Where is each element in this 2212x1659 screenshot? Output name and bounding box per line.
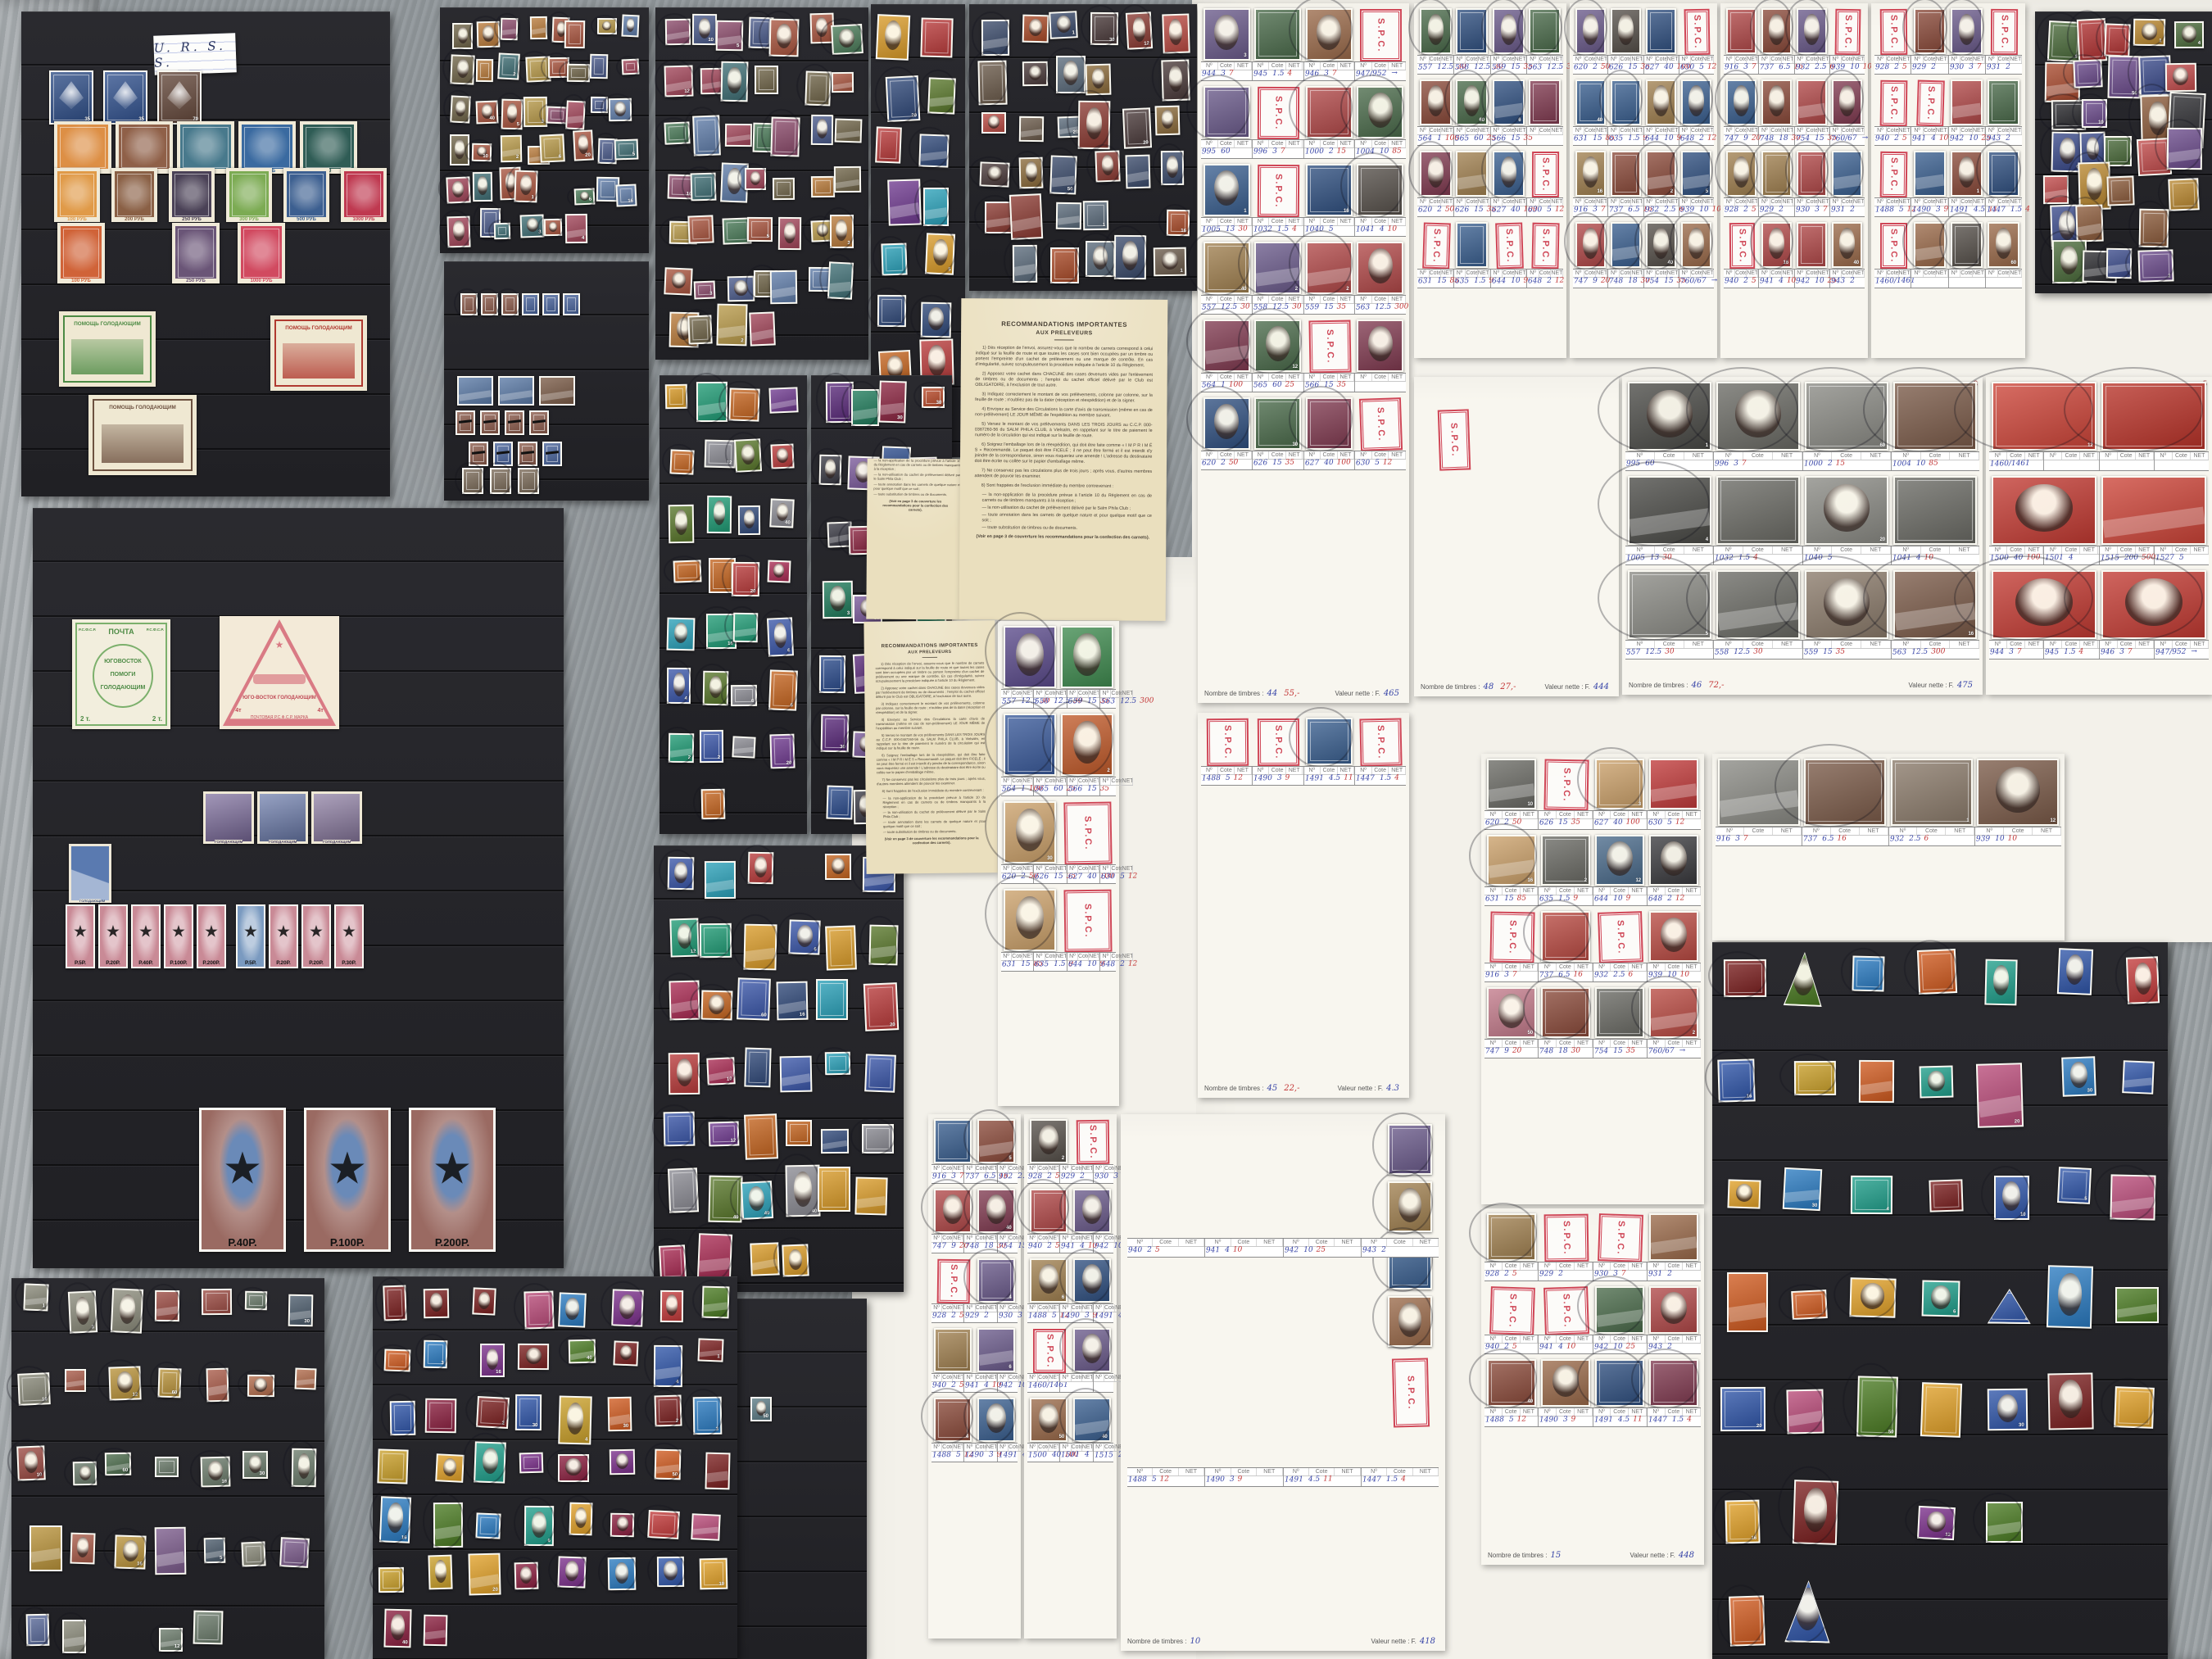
stamp-design [827,383,852,421]
hw-net: 300 [1931,647,1945,655]
price-grid-cell: NºCoteNET [1949,270,1986,288]
collection-label: U. R. S. S. [153,33,237,75]
stamp-design: 16 [1168,211,1189,234]
imperf-stamp: 100 РУБ [57,223,105,283]
spc-handstamp: S.P.C. [1834,9,1861,55]
grid-header-col_no: Nº [1253,374,1270,381]
price-grid-row: NºCoteNET91637NºCoteNET7376.516NºCoteNET… [1724,55,1865,75]
grid-header-col_no: Nº [964,1374,975,1381]
hw-cote: 3 [1277,774,1282,782]
grid-header-col_no: Nº [2100,641,2118,648]
frame-line [753,21,769,44]
handwritten-entry: 941410 [1539,1343,1576,1352]
grid-header-col_net: NET [1973,56,1985,63]
portrait-vignette [741,443,755,465]
hw-cote: 1.5 [1277,225,1290,233]
price-grid-cell: NºCoteNET1515200500 [2100,546,2155,564]
grid-header-col_no: Nº [1986,127,1998,134]
booklet-footer: Nombre de timbres :4455,-Valeur nette : … [1204,689,1403,698]
portrait-vignette [784,221,796,243]
portrait-vignette [2058,1380,2083,1418]
frame-line [1650,12,1672,50]
portrait-vignette [1029,66,1042,81]
hw-net: 12 [1707,134,1717,143]
stamp-design [823,1131,847,1152]
footer-value-amount: 465 [1384,689,1399,698]
hw-cote: 2 [951,1381,956,1389]
stamp: 70 [157,70,202,125]
frame-line [1008,718,1052,772]
hw-net: 30 [1292,302,1302,310]
frame-line [1895,763,1969,822]
stamp-design [1648,81,1675,124]
grid-header-col_no: Nº [1454,270,1466,277]
frame-line [121,127,167,168]
frame-line [2108,140,2128,162]
hw-cote: 3 [1085,1312,1090,1320]
stamp: 2 [501,135,523,162]
stamp-design [781,1058,810,1091]
hw-cote: 4.5 [1308,1475,1320,1484]
hw-cote: 3 [1815,206,1820,214]
grid-header-col_net: NET [1631,56,1643,63]
grid-header-col_no: Nº [1679,198,1691,206]
price-grid-cell: NºCoteNET644109 [1593,887,1648,905]
grid-header-col_cote: Cote [1503,887,1521,895]
hw-net: 7 [1229,70,1234,78]
grid-header-col_net: NET [2191,546,2209,554]
stamp: 30 [607,1397,632,1432]
portrait-vignette [1092,68,1105,88]
hw-cote: 15 [1087,785,1097,793]
stamp-design [156,1458,177,1475]
portrait-vignette [728,67,741,94]
handwritten-entry: 94437 [1202,70,1234,79]
stamp-design [1163,16,1188,52]
stamp [1919,1065,1953,1098]
pictorial-band [470,1574,501,1589]
stamp-design [1895,478,1975,543]
frame-line [1801,155,1823,193]
hw-cote: 5 [1509,1416,1514,1424]
overprint-design: ★Р.5Р. [238,906,264,967]
grid-header-col_net: NET [1022,865,1033,873]
stamp-design: 16 [116,1536,144,1567]
stamp-design [565,22,582,47]
stamp [1832,151,1862,197]
pictorial-band [771,287,795,298]
price-grid-row: NºCoteNET620250NºCoteNET6261535NºCoteNET… [1417,197,1563,217]
stamp-design [769,562,789,582]
handwritten-entry: 644109 [1068,960,1105,969]
grid-header-col_no: Nº [1100,865,1111,873]
stamp-design [1005,891,1054,950]
stamp [1077,101,1110,150]
pictorial-band [1683,174,1710,188]
stamp-design: 16 [777,982,806,1018]
stamp-design [1793,1291,1826,1318]
stamp-design [1798,10,1825,52]
grid-header-col_no: Nº [1060,1165,1071,1172]
exclusion-item: — la non-utilisation du cachet de prélèv… [873,473,960,482]
stamp [669,505,695,543]
hw-net: 11 [1344,773,1353,782]
footer-count-label: Nombre de timbres : [1127,1638,1186,1645]
frame-line [2077,63,2098,84]
price-grid-cell: NºCoteNET55712.530 [1417,56,1454,74]
portrait-vignette [458,27,468,43]
golodayushchim-design [314,794,360,841]
price-grid-row: NºCoteNET94025NºCoteNET941410NºCoteNET94… [931,1373,1018,1393]
stamp-value: 10 [2020,1213,2026,1217]
grid-header-col_net: NET [2010,56,2022,63]
stamp-design: 1 [1085,202,1107,229]
grid-header-col_no: Nº [1253,62,1270,70]
grid-header-col_cote: Cote [1842,198,1853,206]
frame-line [347,174,381,216]
stamp: 50 [1487,987,1536,1038]
portrait-vignette [487,1348,499,1369]
stamp: 16 [1575,151,1606,197]
stamp-design [2103,478,2205,543]
stamp [473,172,493,202]
grid-header-col_net: NET [1056,953,1067,960]
star-overprint-stamp: ★Р.20Р. [301,904,331,968]
hw-number: 558 [1715,648,1729,656]
handwritten-entry: 6311585 [1418,276,1459,285]
footer-value-label: Valeur nette : F. [1630,1552,1675,1559]
pictorial-band [156,1551,184,1566]
price-grid-row: NºCoteNET5641100NºCoteNET5656025NºCoteNE… [1201,373,1406,392]
booklet-footer: Nombre de timbres :15Valeur nette : F.44… [1488,1551,1698,1560]
hw-number: 932 [1644,206,1658,214]
grid-header-col_cote: Cote [1611,1335,1629,1343]
booklet-stamp-row: S.P.C.4 [931,1257,1018,1303]
stamp-design [1612,224,1639,266]
hw-cote: 60 [1645,460,1655,468]
stamp [934,1119,972,1163]
grid-header-col_cote: Cote [1045,865,1056,873]
grid-header-col_cote: Cote [942,1444,953,1451]
grid-header-col_cote: Cote [1960,127,1973,134]
grid-header-col_no: Nº [2044,452,2062,460]
stockbook-page-page-fifties: 1051210533102 [655,7,868,360]
grid-header-col_net: NET [1683,1262,1701,1270]
grid-header-col_cote: Cote [1045,953,1056,960]
grid-header-col_cote: Cote [1503,1262,1521,1270]
stamp [827,261,854,300]
hw-number: 760/67 [1831,134,1857,143]
stamp [875,127,902,164]
handwritten-entry: 15014 [2045,554,2077,563]
stamp [1646,8,1676,54]
recommendation-paragraph: 5) Versez le montant de vos prélèvements… [876,732,985,750]
price-grid-row: NºCoteNET92825NºCoteNET9292NºCoteNET9303… [1874,55,2022,75]
stamp-design [1728,81,1755,124]
hw-net: 12 [1675,895,1685,903]
hw-number: 563 [1356,303,1370,311]
spc-holder: S.P.C. [1541,1212,1590,1261]
hw-number: 630 [1648,818,1662,827]
stamp: 30 [878,381,907,424]
grid-header-col_no: Nº [1304,140,1321,147]
stockbook-page-page-bright: 31640412304302350166201040 [373,1276,737,1659]
hw-cote: 2 [1593,63,1598,71]
stamp-design: 5 [1683,152,1710,195]
stamp-value: 2 [675,1418,678,1423]
stamp-design [1086,65,1109,93]
footer-right: Valeur nette : F.448 [1630,1551,1698,1560]
stamp-value: 3 [538,229,542,234]
stamp-design: 60 [1457,81,1486,124]
stamp-design: 2 [1648,152,1675,195]
stamp-value: 5 [737,44,739,49]
overprint-value: Р.5Р. [238,960,264,966]
hw-number: 563 [1101,697,1115,705]
stamp: 35 [49,70,93,125]
hw-number: 1490 [1539,1416,1558,1424]
green-value: 2 т. [152,715,162,723]
stamp [2105,24,2131,57]
exclusion-item: — la non-application de la procédure pré… [874,459,961,472]
pictorial-band [2111,1197,2154,1213]
stamp [378,1449,409,1484]
stamp-value: 5 [517,123,519,128]
grid-header-col_cote: Cote [1072,1304,1082,1312]
footer-count-value: 44 [1267,689,1277,698]
stamp-value: 5 [1706,189,1708,194]
stamp [610,1513,634,1537]
frame-line [485,297,494,311]
handwritten-entry: 1488512 [1202,773,1243,782]
stamp [666,618,695,650]
star-overprint-stamp: ★Р.30Р. [334,904,364,968]
price-grid-cell: NºCoteNET92825 [1724,198,1759,216]
handwritten-entry: 5591535 [1491,62,1532,71]
stamp: 2 [1646,151,1676,197]
hw-cote: 60 [1272,381,1282,389]
frame-line [600,181,614,198]
hw-number: 748 [1609,277,1623,285]
price-grid-cell: NºCoteNET99637 [1253,140,1304,158]
hw-cote: 2 [985,1312,990,1320]
pictorial-band [1205,345,1249,364]
spc-text: S.P.C. [1274,96,1284,130]
grid-header-col_cote: Cote [1430,198,1442,206]
grid-header-col_cote: Cote [1104,1374,1115,1381]
hw-net: 30 [1665,647,1675,655]
hw-number: 1447 [1648,1416,1667,1424]
stamp [821,1129,849,1154]
pictorial-band [706,879,734,892]
grid-header-col_no: Nº [1795,127,1806,134]
stamp-design [66,1371,84,1390]
hw-number: 557 [1002,697,1016,705]
stamp [1050,247,1079,283]
stamp [292,1448,317,1487]
hw-cote: 3 [1504,971,1509,979]
stamp-design [772,446,792,467]
overprint-star: ★ [276,922,291,942]
stamp-value: 5 [1706,632,1708,637]
stamp-design [249,1376,273,1395]
hw-cote: 1.5 [1672,1416,1684,1424]
price-grid-cell: NºCoteNET1041410 [1892,546,1979,564]
stamp [2073,59,2103,88]
stamp-design: 1 [699,1340,722,1361]
stamp-value: 12 [175,1643,180,1648]
stamp-value: 40 [1853,261,1859,265]
stamp-value: 4 [966,1435,968,1439]
stamp-value: 4 [684,696,687,701]
handwritten-entry: 9292 [965,1312,992,1321]
stamp: 5 [716,20,743,52]
stamp: 60 [1805,382,1888,451]
stamp-design [1013,247,1035,281]
price-grid-cell: NºCoteNET55812.530 [1714,641,1802,659]
price-grid-cell: NºCoteNET9292 [964,1304,997,1322]
portrait-vignette [1769,85,1784,116]
stamp [1306,718,1353,765]
grid-header-col_no: Nº [1100,953,1111,960]
grid-header-col_no: Nº [1417,127,1430,134]
footer-right: Valeur nette : F.465 [1335,689,1403,698]
stamp-design [496,224,510,238]
pictorial-band [829,534,851,544]
hw-cote: 2 [1558,1270,1563,1278]
hw-number: 947/952 [1356,70,1387,79]
collection-label-text: U. R. S. S. [153,38,236,70]
price-grid-cell: NºCoteNET99560 [1625,452,1714,470]
price-grid-cell: NºCoteNET91637 [1724,56,1759,74]
price-grid-cell: NºCoteNET62740100 [1304,451,1356,469]
portrait-vignette [674,861,687,882]
frame-line [1728,963,1763,993]
spc-handstamp: S.P.C. [1879,80,1907,126]
handwritten-entry: 1041410 [1892,553,1933,562]
hw-cote: 18 [985,1242,995,1250]
stockbook-page-page-portraits: 1266016201012404040 [654,845,904,1292]
price-grid-cell: NºCoteNET620250 [1484,811,1539,829]
hw-net: 5 [1155,1246,1160,1254]
portrait-vignette [1101,156,1113,176]
grid-header-col_no: Nº [1679,270,1691,277]
stamp [727,276,755,302]
grid-header-col_no: Nº [2044,546,2062,554]
stamp [154,1526,186,1575]
stamp-design [1075,1260,1109,1301]
stamp-design [979,62,1005,103]
price-grid-cell: NºCoteNET [1355,374,1406,392]
stamp-design [1057,204,1079,228]
hw-number: 1041 [1356,225,1375,233]
stamp [1681,79,1711,125]
hw-cote: → [1392,70,1398,78]
handwritten-entry: 630512 [1680,63,1717,72]
stamp [818,1167,850,1212]
portrait-vignette [298,1453,310,1479]
stamp-design: 10 [700,1560,726,1589]
stamp-design [689,216,712,242]
stamp-design: 2 [499,55,518,79]
stamp-design [454,25,471,48]
green-oval: ЮГОВОСТОКПОМОГИГОЛОДАЮЩИМ [93,644,152,707]
stamp-design [883,244,907,274]
stamp-design [739,507,758,533]
stamp-value: 30 [2087,1089,2092,1094]
handwritten-entry: 630512 [1101,873,1138,882]
stamp: 10 [692,14,717,45]
handwritten-entry: 6351.59 [1609,134,1648,143]
footer-count-value: 46 [1691,681,1702,690]
booklet-footer: Nombre de timbres :4672,-Valeur nette : … [1629,681,1976,690]
grid-header-col_cote: Cote [1557,1040,1575,1047]
portrait-vignette [1167,156,1178,178]
stamp-design [856,1179,886,1214]
hw-net: 12 [1675,818,1685,827]
stamp-design [1915,10,1944,52]
hw-cote: 2 [1667,895,1672,903]
grid-header-col_net: NET [1515,127,1527,134]
stamp-design [478,61,492,80]
recommendations-subtitle: AUX PRELEVEURS [864,649,995,655]
hw-cote: 4.5 [1617,1416,1630,1424]
frame-line [1933,1183,1960,1208]
stamp: 2 [669,732,695,762]
hw-cote: 3 [1593,206,1598,214]
stamp-design [1798,152,1825,195]
frame-line [1310,168,1349,212]
grid-header-col_cote: Cote [1038,1304,1049,1312]
handwritten-entry: 620250 [1002,873,1039,882]
hw-number: 932 [1593,971,1607,979]
portrait-vignette [2058,1273,2083,1316]
stamp [1852,956,1884,992]
hw-cote: 15 [1437,277,1447,285]
stamp: 2 [700,730,723,763]
stamp: 50 [750,1397,772,1421]
portrait-vignette [456,99,465,116]
grid-header-col_cote: Cote [1691,56,1702,63]
imperf-design [119,125,170,170]
hw-net: 7 [1742,460,1747,468]
hw-cote: 60 [1474,134,1484,143]
grid-header-col_cote: Cote [1503,1408,1521,1416]
frame-line [663,1249,682,1276]
grid-header-col_no: Nº [1648,1408,1666,1416]
portrait-vignette [673,673,684,696]
hw-number: 941 [1912,134,1926,143]
pictorial-band [2117,1303,2158,1317]
stamp-design: 40 [1075,1399,1109,1440]
stamp-value: 16 [137,1561,143,1566]
frame-line [1992,84,2015,121]
imperf-stamp: 20 РУБ [238,121,296,174]
grid-header-col_cote: Cote [1960,198,1973,206]
pictorial-band [1494,102,1523,117]
frame-line [498,227,507,235]
stamp [750,1242,780,1276]
price-grid-row: NºCoteNET94025NºCoteNET941410NºCoteNET94… [1484,1335,1701,1354]
hw-number: 946 [2100,648,2114,656]
stamp-design: 50 [655,1451,679,1478]
stamp [26,1613,50,1646]
stamp-design: 2 [1308,243,1351,292]
frame-line [519,1398,537,1426]
hw-cote: 1.5 [2010,206,2023,214]
grid-header-col_no: Nº [1001,777,1012,785]
stamp: 6 [730,685,756,706]
